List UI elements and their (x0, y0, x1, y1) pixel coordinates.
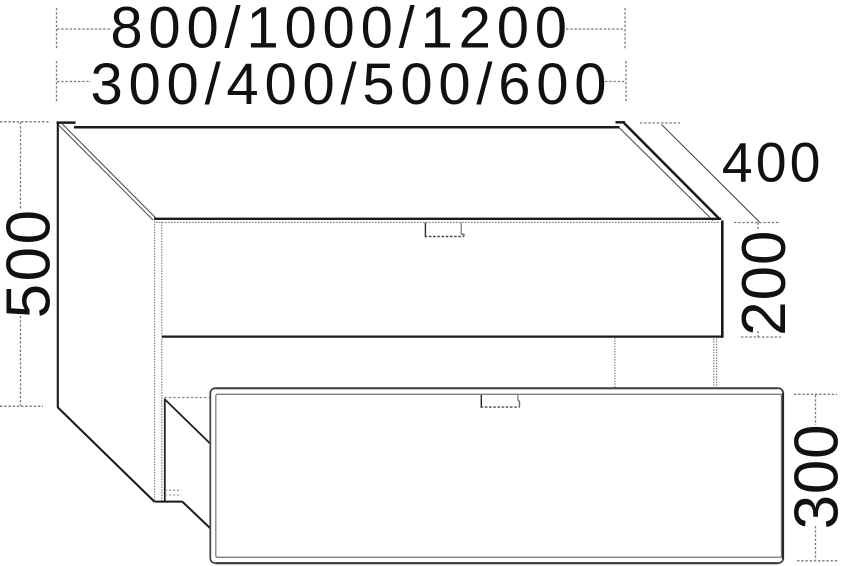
svg-text:500: 500 (0, 207, 63, 318)
svg-text:300/400/500/600: 300/400/500/600 (91, 52, 613, 117)
svg-text:400: 400 (722, 131, 824, 193)
svg-text:300: 300 (783, 424, 852, 530)
svg-text:200: 200 (730, 229, 799, 335)
